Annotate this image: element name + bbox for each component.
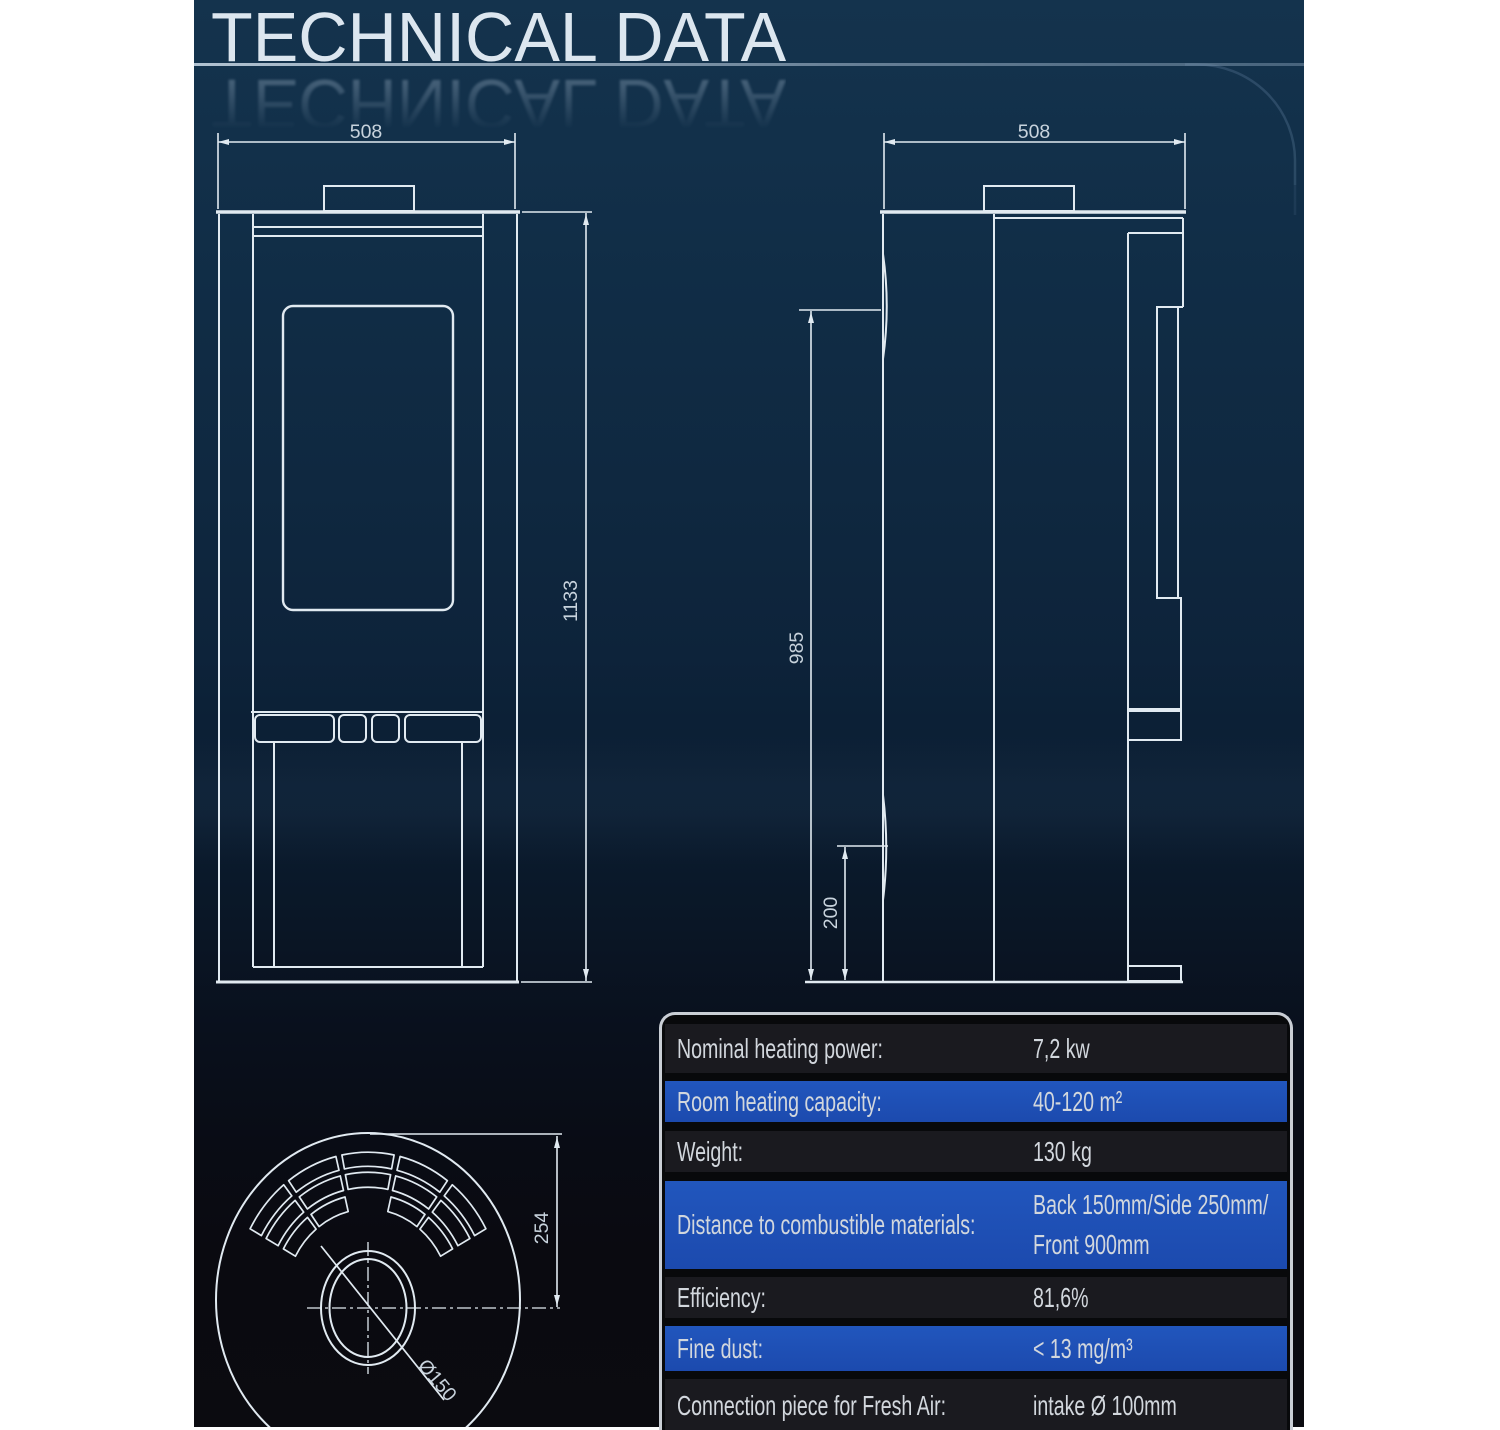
svg-text:508: 508 [1018, 121, 1051, 143]
svg-text:508: 508 [350, 121, 383, 143]
svg-text:Ø150: Ø150 [413, 1355, 461, 1406]
svg-text:200: 200 [820, 897, 842, 930]
svg-text:1133: 1133 [560, 580, 582, 622]
svg-text:254: 254 [531, 1212, 553, 1245]
svg-text:985: 985 [786, 632, 808, 665]
